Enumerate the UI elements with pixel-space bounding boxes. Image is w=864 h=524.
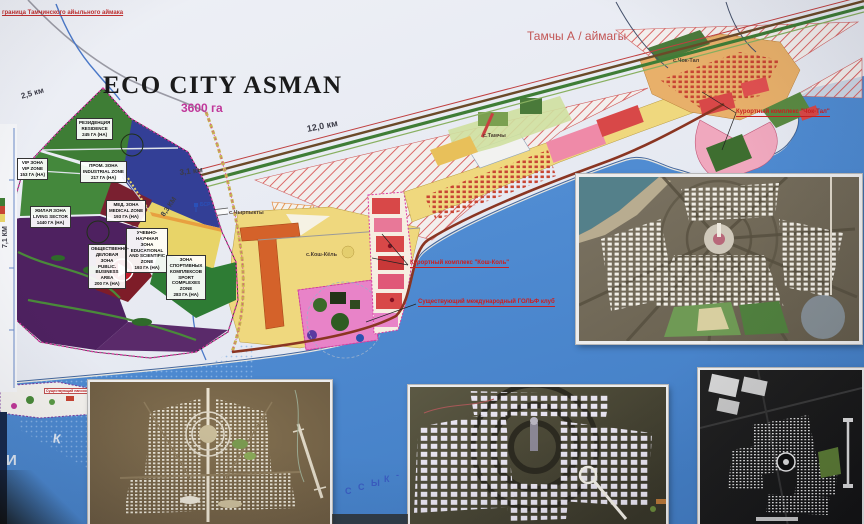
zone-ru: УЧЕБНО-НАУЧНАЯ ЗОНА — [129, 230, 165, 248]
annotation-choktal-resort: Курортный комплекс "Чок-Тал" — [736, 109, 830, 117]
lake-letter: И — [6, 452, 17, 469]
zone-area: 283 ГА (НА) — [169, 292, 203, 298]
annotation-golf-club: Существующий международный ГОЛЬФ клуб — [418, 299, 555, 307]
zone-label-educational: УЧЕБНО-НАУЧНАЯ ЗОНА EDUCATIONAL AND SCIE… — [126, 228, 168, 273]
zone-en: LIVING SECTOR — [33, 214, 68, 220]
zone-ru: ОБЩЕСТВЕННО-ДЕЛОВАЯ ЗОНА — [91, 246, 123, 264]
zone-ru: ЖИЛАЯ ЗОНА — [33, 208, 68, 214]
zone-ru: ПРОМ. ЗОНА — [83, 163, 124, 169]
zone-en: EDUCATIONAL AND SCIENTIFIC ZONE — [129, 248, 165, 266]
zone-label-business: ОБЩЕСТВЕННО-ДЕЛОВАЯ ЗОНА PUBLIC. BUSINES… — [88, 244, 126, 289]
lake-letter: Ы — [371, 478, 380, 488]
settlement-koshkol: с.Кош-Кёль — [306, 252, 337, 258]
zone-ru: РЕЗИДЕНЦИЯ — [79, 120, 110, 126]
lake-letter: С — [358, 482, 365, 492]
zone-area: 193 ГА (НА) — [129, 265, 165, 271]
zone-ru: МЕД. ЗОНА — [109, 202, 143, 208]
total-area: 3600 га — [181, 101, 223, 115]
left-margin-strip — [0, 124, 17, 392]
poster-title: ECO CITY ASMAN — [103, 72, 343, 100]
zone-en: INDUSTRIAL ZONE — [83, 169, 124, 175]
zone-en: PUBLIC. BUSINESS AREA — [91, 264, 123, 282]
zone-label-living: ЖИЛАЯ ЗОНА LIVING SECTOR 1440 ГА (НА) — [30, 206, 71, 228]
zone-en: RESIDENCE — [79, 126, 110, 132]
render-photo-plan-dark — [698, 368, 864, 524]
render-photo-city-aerial — [576, 174, 862, 344]
zone-label-sport: ЗОНА СПОРТИВНЫХ КОМПЛЕКСОВ SPORT COMPLEX… — [166, 255, 206, 300]
zone-area: 153 ГА (НА) — [20, 172, 45, 178]
annotation-koshkol-resort: Курортный комплекс "Кош-Коль" — [410, 260, 509, 268]
zone-area: 200 ГА (НА) — [91, 281, 123, 287]
render-plan-dark-art — [700, 370, 862, 524]
zone-en: SPORT COMPLEXES ZONE — [169, 275, 203, 293]
lake-letter: К — [384, 474, 390, 484]
zone-en: MEDICAL ZONE — [109, 208, 143, 214]
region-label: Тамчы А / аймагы — [527, 29, 626, 43]
settlement-tamchy: с.Тамчы — [483, 133, 506, 139]
zone-label-residence: РЕЗИДЕНЦИЯ RESIDENCE 245 ГА (НА) — [76, 118, 113, 140]
zone-label-industrial: ПРОМ. ЗОНА INDUSTRIAL ZONE 217 ГА (НА) — [80, 161, 127, 183]
zone-area: 1440 ГА (НА) — [33, 220, 68, 226]
masterplan-poster-photo: граница Тамчинского айыльного аймака Там… — [0, 0, 864, 524]
distance-7-1km: 7,1 КМ — [2, 226, 9, 248]
render-city-aerial-art — [579, 177, 859, 341]
zone-area: 245 ГА (НА) — [79, 132, 110, 138]
render-photo-city-closeup — [408, 385, 668, 524]
zone-label-medical: МЕД. ЗОНА MEDICAL ZONE 193 ГА (НА) — [106, 200, 146, 222]
settlement-choktal: с.Чок-Тал — [673, 58, 699, 64]
zone-area: 193 ГА (НА) — [109, 214, 143, 220]
lake-letter: - — [396, 470, 399, 480]
render-photo-plan-overview — [88, 380, 332, 524]
zone-ru: ЗОНА СПОРТИВНЫХ КОМПЛЕКСОВ — [169, 257, 203, 275]
zone-area: 217 ГА (НА) — [83, 175, 124, 181]
render-city-closeup-art — [410, 387, 666, 524]
bsr-marker-label: БСР — [200, 202, 210, 208]
zone-en: VIP ZONE — [20, 166, 45, 172]
zone-label-vip: VIP ЗОНА VIP ZONE 153 ГА (НА) — [17, 158, 48, 180]
lake-letter: С — [345, 486, 352, 496]
render-plan-overview-art — [90, 382, 330, 524]
zone-ru: VIP ЗОНА — [20, 160, 45, 166]
boundary-note: граница Тамчинского айыльного аймака — [2, 10, 123, 16]
settlement-chyrpykty: с.Чырпыкты — [229, 210, 264, 216]
